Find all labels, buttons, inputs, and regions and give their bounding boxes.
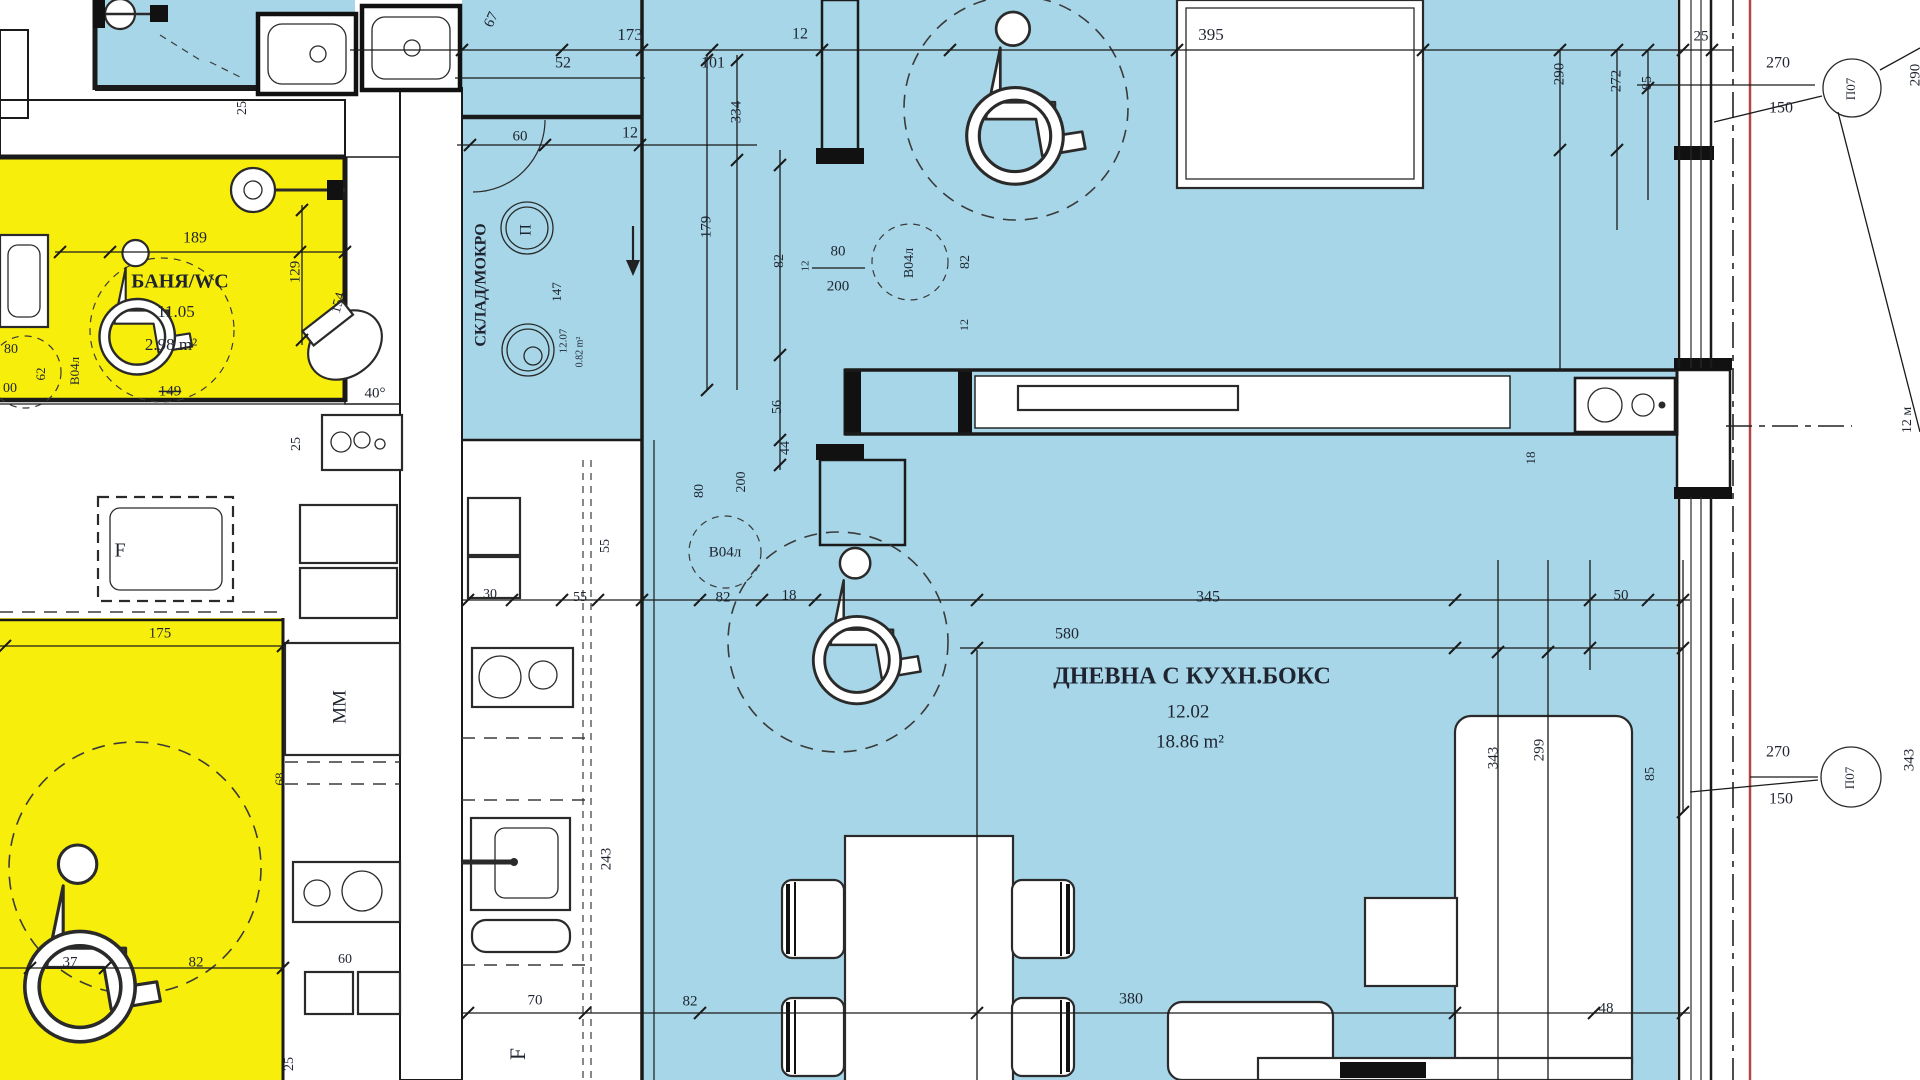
- dimension-label: 82: [189, 954, 204, 970]
- dimension-label: 345: [1196, 589, 1220, 606]
- dimension-label: 56: [770, 400, 785, 414]
- dimension-label: 200: [734, 472, 749, 493]
- dimension-label: 147: [549, 282, 564, 302]
- room-name-label: ДНЕВНА С КУХН.БОКС: [1053, 664, 1331, 690]
- dimension-label: 62: [33, 368, 48, 381]
- dimension-label: 149: [159, 383, 182, 399]
- angle-label: 40°: [365, 385, 386, 401]
- room-area-label: 0.82 m²: [574, 337, 585, 368]
- dimension-label: 82: [772, 254, 787, 268]
- dining-table: [845, 836, 1013, 1080]
- dimension-label: 55: [598, 539, 613, 553]
- dimension-label: 101: [701, 55, 725, 72]
- dimension-label: 173: [617, 25, 643, 44]
- dimension-label: 25: [1694, 28, 1709, 44]
- door-size-width: 270: [1766, 55, 1790, 72]
- dimension-label: 82: [683, 993, 698, 1009]
- dimension-label: 70: [528, 992, 543, 1008]
- dimension-label: 272: [1608, 70, 1624, 93]
- dimension-label: 175: [149, 625, 172, 641]
- dimension-label: 60: [513, 128, 528, 144]
- dimension-label: 25: [289, 437, 304, 451]
- dimension-label: 82: [958, 255, 973, 269]
- appliance-label: F: [114, 540, 125, 562]
- door-size-height: 00: [3, 381, 17, 396]
- dimension-label: 18: [1523, 452, 1538, 465]
- dimension-label: 80: [692, 484, 707, 498]
- dimension-label: 50: [1614, 587, 1629, 603]
- side-table: [1365, 898, 1457, 986]
- dimension-label: 179: [698, 216, 714, 239]
- appliance-label: П: [518, 224, 535, 236]
- door-size-height: 150: [1769, 100, 1793, 117]
- dimension-label: 60: [338, 952, 352, 967]
- dimension-label: 129: [287, 261, 303, 284]
- door-tag: В04л: [902, 248, 917, 278]
- dimension-label: 12: [622, 125, 638, 142]
- dimension-label: 12: [800, 261, 812, 272]
- door-size-height: 200: [827, 278, 850, 294]
- dimension-label: 85: [1643, 767, 1658, 781]
- room-name-label: БАНЯ/WC: [131, 271, 228, 293]
- dimension-label: 30: [483, 587, 497, 602]
- dimension-label: 395: [1198, 25, 1224, 44]
- appliance-label: F: [505, 1048, 530, 1060]
- dimension-label: 37: [63, 954, 79, 970]
- dimension-label: 52: [555, 55, 571, 72]
- door-size-width: 80: [4, 342, 18, 357]
- dimension-label: 299: [1531, 739, 1547, 762]
- dimension-label: 580: [1055, 626, 1079, 643]
- room-number-label: 12.07: [558, 328, 570, 353]
- dimension-label: 48: [1599, 1000, 1614, 1016]
- room-number-label: 12.02: [1167, 701, 1210, 722]
- door-tag: В04л: [67, 356, 82, 385]
- dimension-label: 343: [1485, 747, 1501, 770]
- bathtub-2: [362, 6, 460, 90]
- dimension-label: 334: [728, 100, 744, 123]
- dimension-label: 44: [778, 441, 793, 455]
- bathtub: [258, 14, 356, 94]
- dimension-label: 343: [1901, 749, 1917, 772]
- dimension-label: 25: [235, 101, 250, 115]
- room-number-label: 11.05: [157, 302, 195, 321]
- room-name-label: СКЛАД/МОКРО: [473, 223, 490, 346]
- cooktop: [293, 862, 400, 922]
- door-tag: В04л: [709, 544, 742, 560]
- dimension-label: 55: [573, 590, 587, 605]
- dimension-label: 12 м: [1900, 407, 1915, 434]
- dimension-label: 12: [957, 319, 971, 331]
- dimension-label: 85: [1640, 76, 1655, 90]
- window-tag: П07: [1843, 77, 1858, 100]
- sofa: [1455, 716, 1632, 1080]
- room-area-label: 18.86 m²: [1156, 731, 1224, 752]
- door-size-width: 80: [831, 243, 846, 259]
- cooktop-2: [472, 648, 573, 707]
- room-area-label: 2.98 m²: [145, 335, 197, 354]
- window-tag: П07: [1842, 766, 1857, 789]
- dimension-label: 12: [792, 26, 808, 43]
- dimension-label: 82: [716, 589, 731, 605]
- dimension-label: 380: [1119, 991, 1143, 1008]
- door-size-height: 150: [1769, 791, 1793, 808]
- floor-plan-drawing: 6717352101121260334179828020012В04л82395…: [0, 0, 1920, 1080]
- dimension-label: 189: [183, 230, 207, 247]
- tv-unit: [1340, 1062, 1426, 1078]
- dimension-label: 68: [272, 773, 287, 786]
- appliance-label: MM: [329, 690, 350, 724]
- dimension-label: 25: [282, 1057, 297, 1071]
- dimension-label: 18: [782, 587, 797, 603]
- dimension-label: 290: [1551, 63, 1567, 86]
- dimension-label: 243: [598, 848, 614, 871]
- floor-plan-canvas: 6717352101121260334179828020012В04л82395…: [0, 0, 1920, 1080]
- door-size-width: 270: [1766, 744, 1790, 761]
- dimension-label: 290: [1907, 64, 1920, 87]
